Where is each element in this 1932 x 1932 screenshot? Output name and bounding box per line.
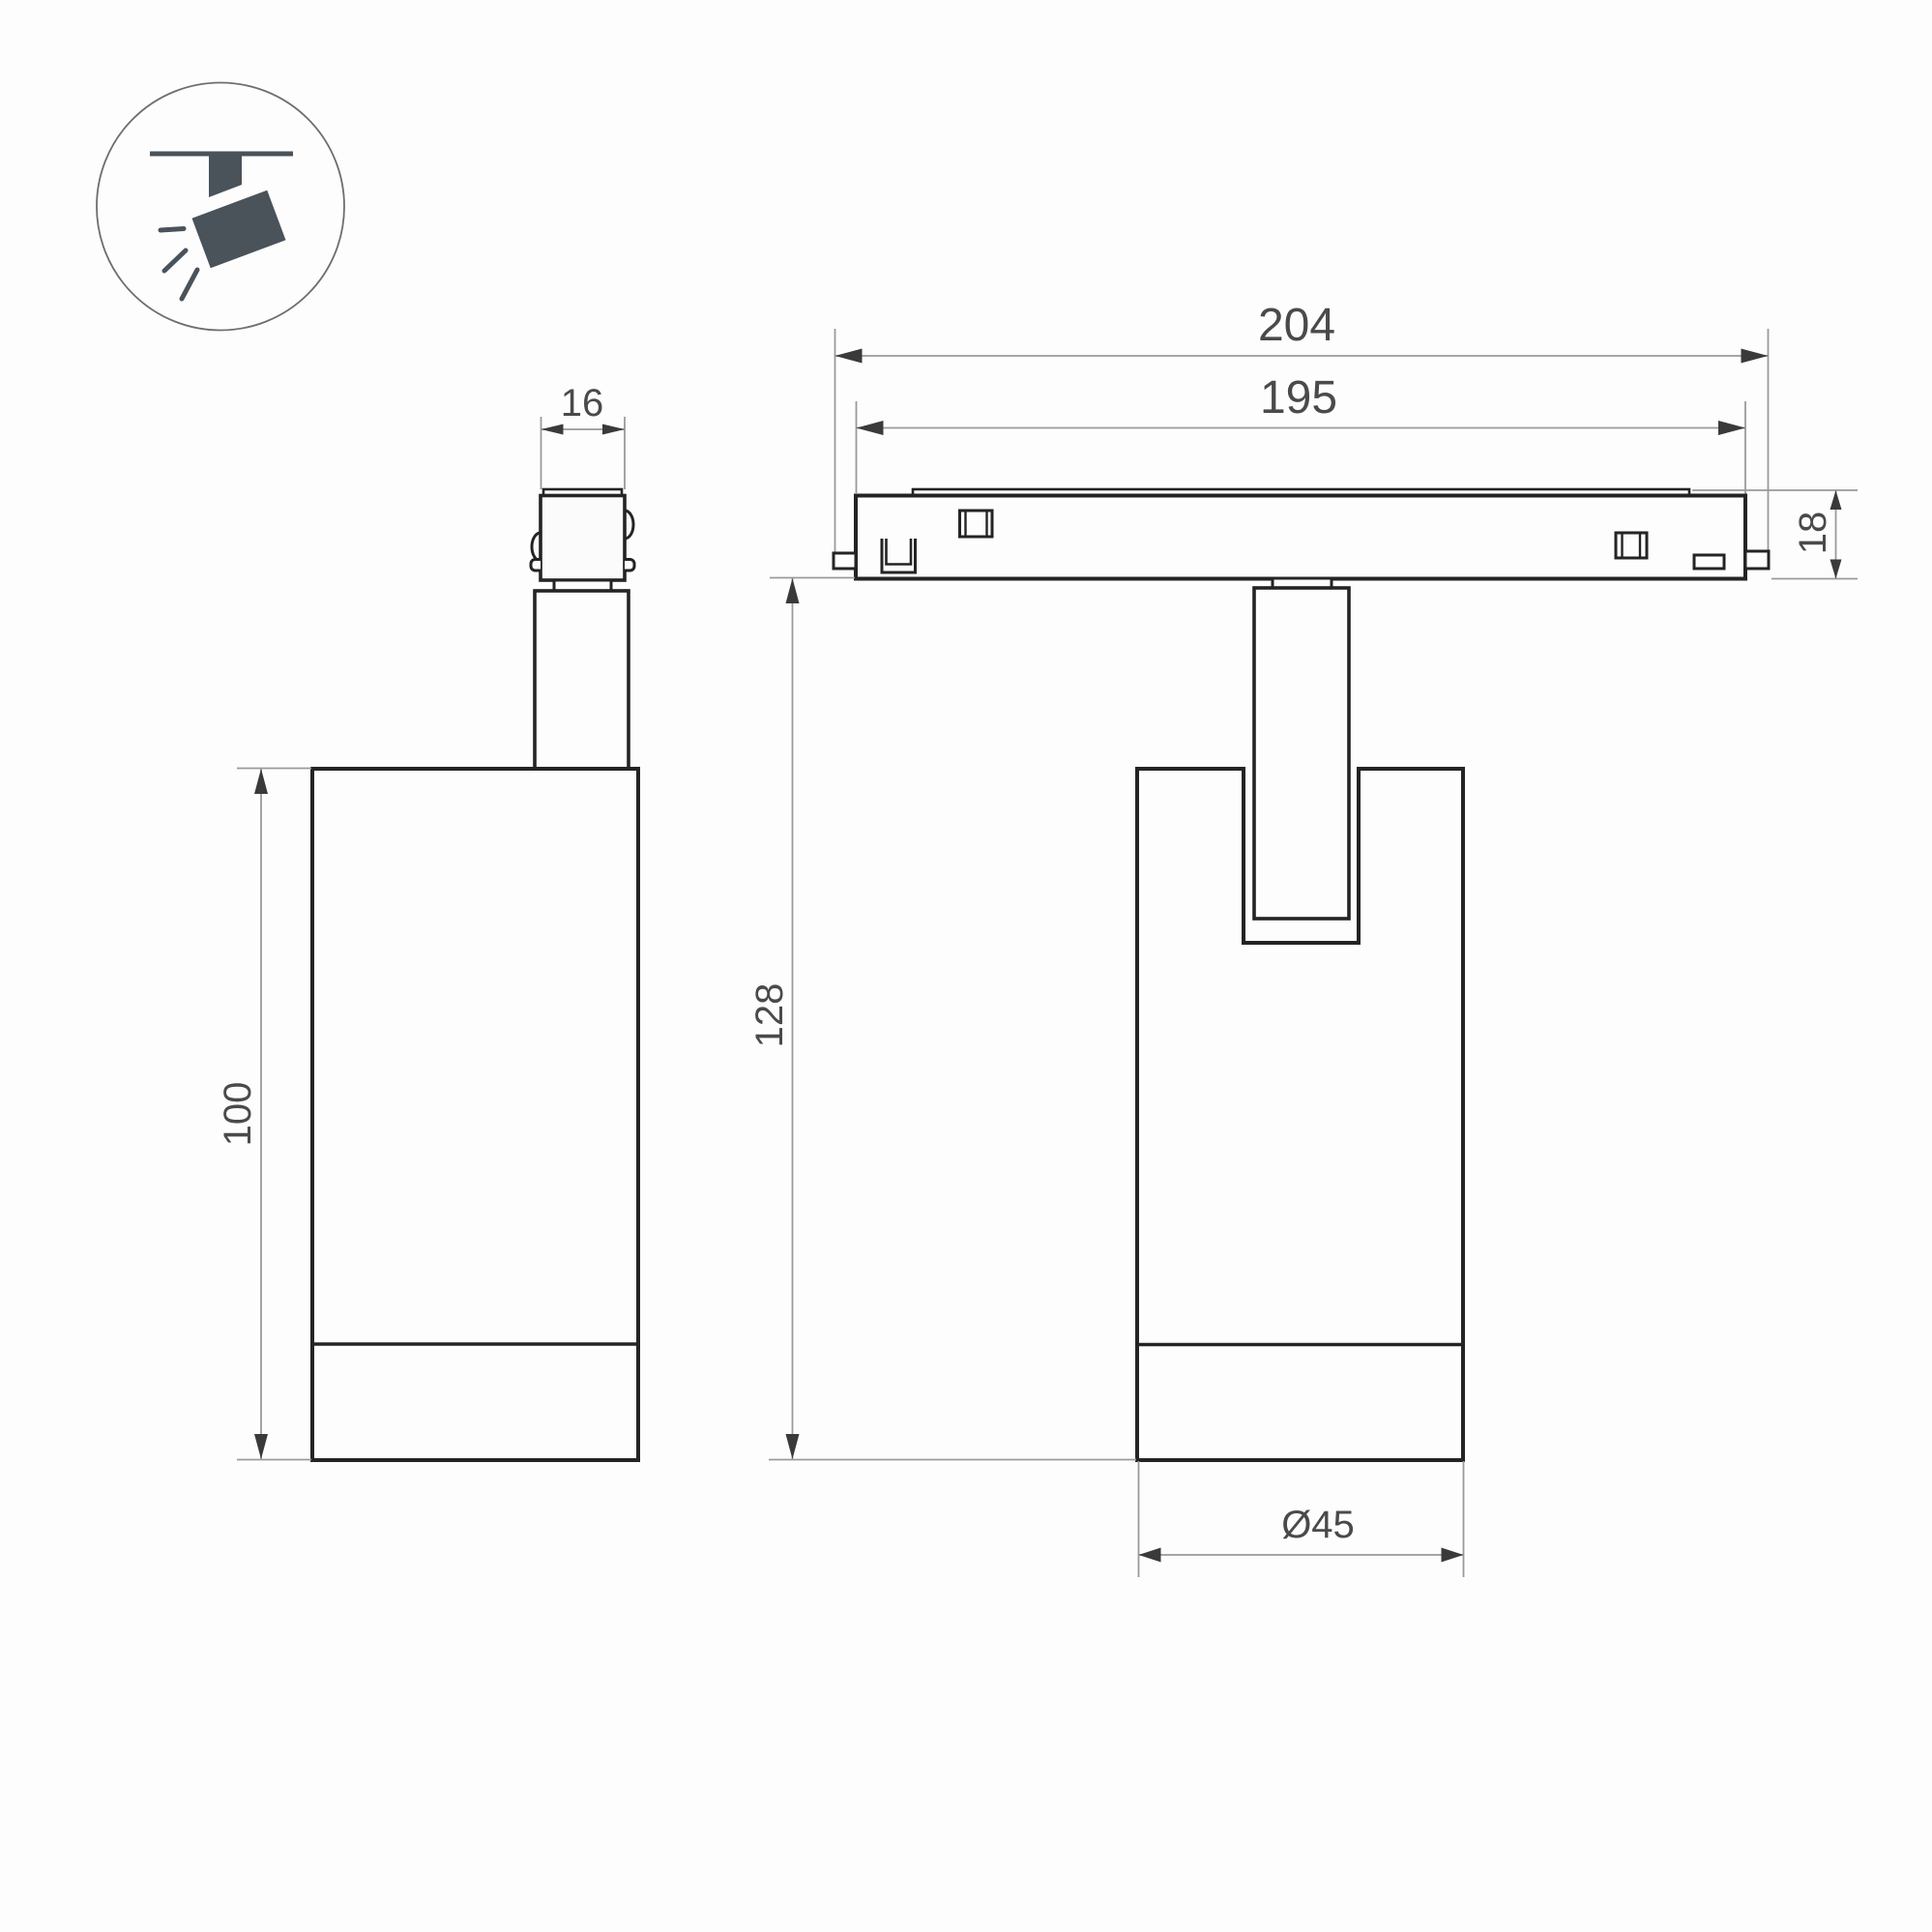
svg-text:204: 204 [1258, 300, 1335, 351]
svg-text:18: 18 [1792, 512, 1834, 555]
svg-text:195: 195 [1260, 372, 1337, 424]
svg-text:100: 100 [217, 1082, 259, 1147]
svg-text:Ø45: Ø45 [1281, 1504, 1355, 1546]
svg-text:16: 16 [561, 382, 604, 424]
svg-text:128: 128 [748, 983, 791, 1048]
